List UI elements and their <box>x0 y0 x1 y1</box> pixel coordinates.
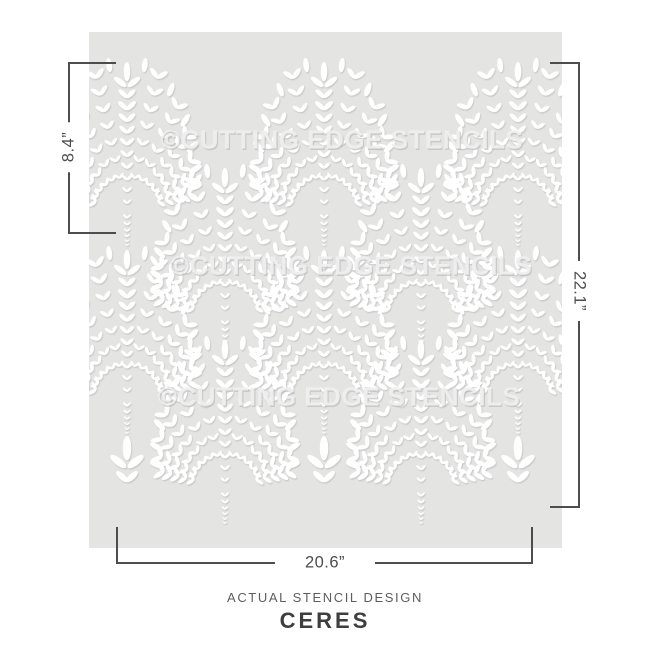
fan-motif <box>247 58 401 246</box>
bud-motif <box>108 436 145 484</box>
stencil-name-title: CERES <box>0 608 650 634</box>
dimension-label-height-repeat: 8.4” <box>60 122 79 172</box>
stencil-pattern <box>0 0 650 650</box>
dimension-label-height: 22.1” <box>570 261 589 321</box>
caption-subtitle: ACTUAL STENCIL DESIGN <box>0 590 650 605</box>
dimension-tick <box>68 232 116 234</box>
dimension-label-width: 20.6” <box>275 554 375 573</box>
stencil-product-image: ©CUTTING EDGE STENCILS ©CUTTING EDGE STE… <box>0 0 650 650</box>
bud-motif <box>305 436 342 484</box>
bud-motif <box>499 436 536 484</box>
fan-motif <box>344 336 498 524</box>
dimension-tick <box>116 527 118 564</box>
dimension-tick <box>68 62 116 64</box>
dimension-tick <box>531 527 533 564</box>
fan-motif <box>441 58 595 246</box>
dimension-tick <box>550 506 580 508</box>
dimension-tick <box>550 62 580 64</box>
